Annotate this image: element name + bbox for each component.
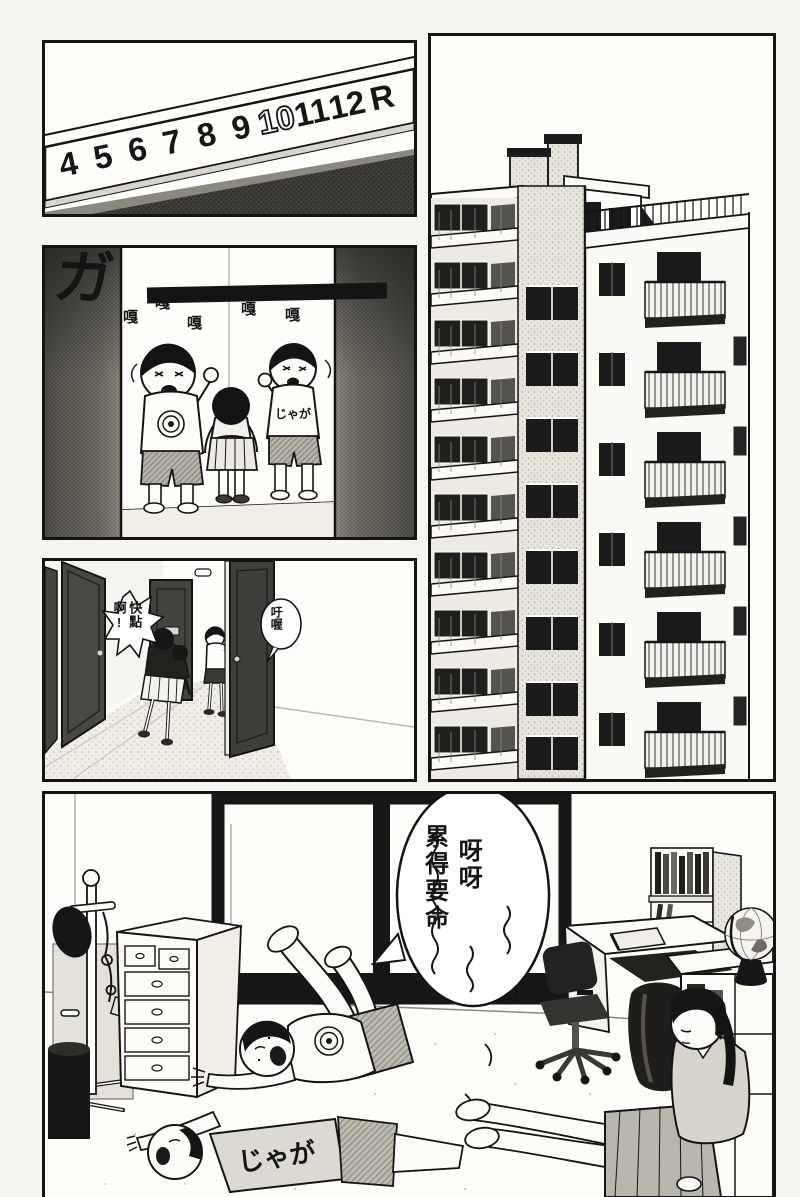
dark-cylinder-bin bbox=[48, 1049, 90, 1139]
bubble-hurry-text: 快點 啊! bbox=[111, 601, 142, 661]
bubble-tired-text: 呀呀 累得要命 bbox=[417, 824, 484, 1010]
building-right-facade bbox=[585, 186, 749, 779]
panel-room: じゃが bbox=[42, 791, 776, 1197]
panel-building bbox=[428, 33, 776, 782]
sfx-rattle: 嘎 bbox=[155, 292, 170, 313]
floor-number: R bbox=[361, 77, 402, 117]
sfx-door-sound: ガ bbox=[51, 249, 117, 310]
sfx-rattle: 嘎 bbox=[187, 312, 202, 333]
building-artwork bbox=[431, 36, 773, 779]
building-stair-core bbox=[518, 186, 585, 779]
hallway-door-open bbox=[225, 561, 274, 757]
panel-hallway: 快點 啊! 吁喔 bbox=[42, 558, 417, 782]
hallway-artwork bbox=[45, 561, 414, 779]
sfx-rattle: 嘎 bbox=[123, 306, 138, 327]
building-left-facade bbox=[431, 186, 523, 779]
bubble-grunt-text: 吁喔 bbox=[269, 606, 282, 650]
panel-elevator-indicator: 4 5 6 7 8 9 10 11 12 R bbox=[42, 40, 417, 217]
panel-elevator-doors: じゃが bbox=[42, 245, 417, 540]
shirt-logo-text: じゃが bbox=[275, 406, 311, 421]
manga-page: 4 5 6 7 8 9 10 11 12 R bbox=[0, 0, 800, 1197]
bin-top bbox=[48, 1042, 90, 1056]
room-artwork: じゃが bbox=[45, 794, 773, 1197]
sfx-rattle: 嘎 bbox=[241, 298, 256, 319]
chest-of-drawers bbox=[117, 918, 241, 1097]
sfx-rattle: 嘎 bbox=[285, 304, 300, 325]
